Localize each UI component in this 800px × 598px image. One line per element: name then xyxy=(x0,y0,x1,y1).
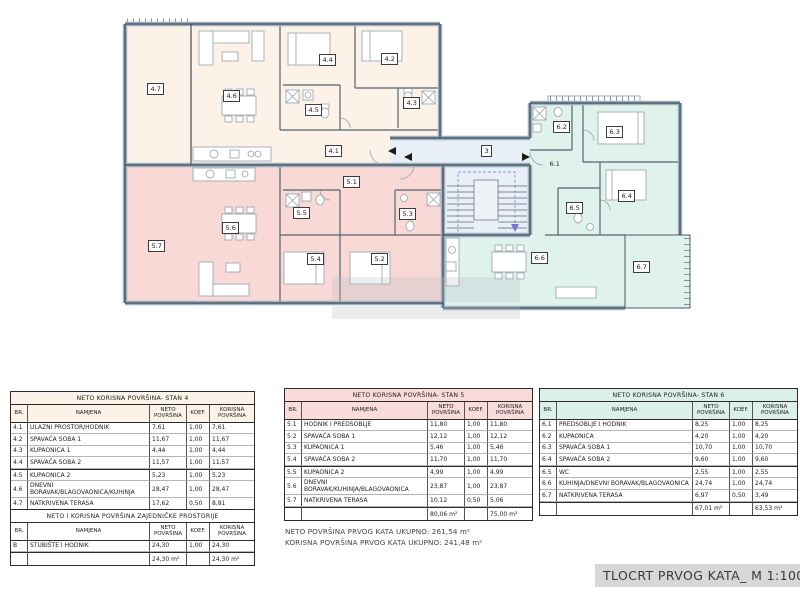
table-cell: 1,00 xyxy=(730,443,753,455)
table-total-row: 67,01 m²63,53 m² xyxy=(540,502,797,515)
room-label-6.5: 6.5 xyxy=(566,202,583,214)
room-label-5.3: 5.3 xyxy=(399,208,416,220)
table-cell: 5.2 xyxy=(285,431,302,443)
table-cell: 6.4 xyxy=(540,454,557,466)
table-row: 6.2KUPAONICA4,201,004,20 xyxy=(540,431,797,443)
table-row: 6.3SPAVAĆA SOBA 110,701,0010,70 xyxy=(540,443,797,455)
total-cell: 75,00 m² xyxy=(488,507,532,520)
table-cell: 2,55 xyxy=(753,466,797,479)
column-header: KORISNA POVRŠINA xyxy=(753,402,797,420)
table-cell: 12,12 xyxy=(488,431,532,443)
table-total-row: 24,30 m²24,30 m² xyxy=(11,552,254,565)
table-cell: KUPAONICA 1 xyxy=(302,443,428,455)
table-row: 4.5KUPAONICA 25,231,005,23 xyxy=(11,469,254,482)
drawing-title: TLOCRT PRVOG KATA_ M 1:100 xyxy=(603,568,800,583)
table-stan6: NETO KORISNA POVRŠINA- STAN 6BR.NAMJENAN… xyxy=(539,388,798,516)
total-neto-line: NETO POVRŠINA PRVOG KATA UKUPNO: 261,54 … xyxy=(285,526,482,537)
table-cell: 5.6 xyxy=(285,478,302,495)
table-cell: 11,67 xyxy=(150,434,187,446)
table-header-row: BR.NAMJENANETO POVRŠINAKOEF.KORISNA POVR… xyxy=(540,402,797,420)
room-label-4.1: 4.1 xyxy=(325,145,342,157)
table-cell: 5,46 xyxy=(428,443,465,455)
table-row: 5.1HODNIK I PREDSOBLJE11,801,0011,80 xyxy=(285,420,532,432)
table-cell: KUPAONICA 2 xyxy=(302,466,428,479)
table-cell: SPAVAĆA SOBA 2 xyxy=(557,454,693,466)
table-cell: 28,47 xyxy=(150,481,187,498)
title-block: TLOCRT PRVOG KATA_ M 1:100 xyxy=(595,564,800,587)
table-row: 6.5WC2,551,002,55 xyxy=(540,466,797,479)
table-cell: 11,70 xyxy=(428,454,465,466)
table-cell: 1,00 xyxy=(465,478,488,495)
table-cell: 1,00 xyxy=(187,469,210,482)
table-common: NETO I KORISNA POVRŠINA ZAJEDNIČKE PROST… xyxy=(10,509,255,566)
table-row: 5.3KUPAONICA 15,461,005,46 xyxy=(285,443,532,455)
total-cell xyxy=(730,502,753,515)
table-cell: SPAVAĆA SOBA 1 xyxy=(557,443,693,455)
table-cell: HODNIK I PREDSOBLJE xyxy=(302,420,428,432)
room-label-4.6: 4.6 xyxy=(223,90,240,102)
table-cell: 6,97 xyxy=(693,490,730,502)
table-row: 6.6KUHINJA/DNEVNI BORAVAK/BLAGOVAONICA24… xyxy=(540,478,797,490)
table-title: NETO I KORISNA POVRŠINA ZAJEDNIČKE PROST… xyxy=(11,510,254,523)
table-cell: 11,67 xyxy=(210,434,254,446)
table-cell: 3,49 xyxy=(753,490,797,502)
table-cell: 4.4 xyxy=(11,457,28,469)
total-cell xyxy=(11,552,28,565)
table-cell: 1,00 xyxy=(187,541,210,553)
column-header: KOEF. xyxy=(187,405,210,423)
table-cell: KUPAONICA 1 xyxy=(28,446,150,458)
table-cell: 1,00 xyxy=(730,466,753,479)
column-header: KORISNA POVRŠINA xyxy=(488,402,532,420)
floor-totals: NETO POVRŠINA PRVOG KATA UKUPNO: 261,54 … xyxy=(285,526,482,548)
table-cell: SPAVAĆA SOBA 2 xyxy=(302,454,428,466)
total-cell: 67,01 m² xyxy=(693,502,730,515)
column-header: KOEF. xyxy=(730,402,753,420)
table-header-row: BR.NAMJENANETO POVRŠINAKOEF.KORISNA POVR… xyxy=(11,523,254,541)
table-cell: 6.2 xyxy=(540,431,557,443)
table-cell: 2,55 xyxy=(693,466,730,479)
table-cell: 6.3 xyxy=(540,443,557,455)
column-header: NETO POVRŠINA xyxy=(150,405,187,423)
table-cell: 4,44 xyxy=(210,446,254,458)
table-cell: KUPAONICA 2 xyxy=(28,469,150,482)
table-cell: 23,87 xyxy=(488,478,532,495)
table-row: 6.1PREDSOBLJE I HODNIK8,251,008,25 xyxy=(540,420,797,432)
table-row: 4.4SPAVAĆA SOBA 211,571,0011,57 xyxy=(11,457,254,469)
table-cell: 1,00 xyxy=(730,431,753,443)
table-cell: 24,74 xyxy=(753,478,797,490)
table-cell: 5.1 xyxy=(285,420,302,432)
table-cell: 4.2 xyxy=(11,434,28,446)
column-header: NETO POVRŠINA xyxy=(693,402,730,420)
table-row: 5.6DNEVNI BORAVAK/KUHINJA/BLAGOVAONICA23… xyxy=(285,478,532,495)
table-cell: DNEVNI BORAVAK/BLAGOVAONICA/KUHINJA xyxy=(28,481,150,498)
table-cell: 1,00 xyxy=(187,434,210,446)
table-cell: 11,80 xyxy=(428,420,465,432)
table-cell: 1,00 xyxy=(465,431,488,443)
total-cell xyxy=(540,502,557,515)
total-cell: 63,53 m² xyxy=(753,502,797,515)
table-cell: SPAVAĆA SOBA 1 xyxy=(302,431,428,443)
room-label-4.5: 4.5 xyxy=(305,104,322,116)
table-row: 5.5KUPAONICA 24,991,004,99 xyxy=(285,466,532,479)
table-cell: 7,61 xyxy=(210,423,254,435)
column-header: KORISNA POVRŠINA xyxy=(210,405,254,423)
table-cell: 1,00 xyxy=(187,423,210,435)
column-header: NAMJENA xyxy=(302,402,428,420)
table-row: 4.2SPAVAĆA SOBA 111,671,0011,67 xyxy=(11,434,254,446)
column-header: NETO POVRŠINA xyxy=(428,402,465,420)
table-cell: 4.3 xyxy=(11,446,28,458)
table-cell: 1,00 xyxy=(465,454,488,466)
table-cell: KUHINJA/DNEVNI BORAVAK/BLAGOVAONICA xyxy=(557,478,693,490)
table-row: 6.7NATKRIVENA TERASA6,970,503,49 xyxy=(540,490,797,502)
room-label-5.4: 5.4 xyxy=(307,253,324,265)
total-cell xyxy=(187,552,210,565)
table-cell: 5.7 xyxy=(285,495,302,507)
table-cell: 1,00 xyxy=(730,478,753,490)
table-row: BSTUBIŠTE I HODNIK24,301,0024,30 xyxy=(11,541,254,553)
table-cell: 11,57 xyxy=(210,457,254,469)
table-cell: 9,60 xyxy=(753,454,797,466)
table-cell: 4,99 xyxy=(428,466,465,479)
room-label-3: 3 xyxy=(481,145,492,157)
table-cell: 1,00 xyxy=(187,481,210,498)
total-cell xyxy=(302,507,428,520)
table-cell: 11,57 xyxy=(150,457,187,469)
table-cell: 5,23 xyxy=(210,469,254,482)
table-cell: NATKRIVENA TERASA xyxy=(557,490,693,502)
table-cell: 1,00 xyxy=(187,457,210,469)
table-cell: DNEVNI BORAVAK/KUHINJA/BLAGOVAONICA xyxy=(302,478,428,495)
table-header-row: BR.NAMJENANETO POVRŠINAKOEF.KORISNA POVR… xyxy=(285,402,532,420)
table-cell: 10,70 xyxy=(693,443,730,455)
column-header: KOEF. xyxy=(187,523,210,541)
table-cell: 11,70 xyxy=(488,454,532,466)
room-label-5.2: 5.2 xyxy=(371,253,388,265)
table-cell: 10,12 xyxy=(428,495,465,507)
column-header: BR. xyxy=(540,402,557,420)
table-row: 4.3KUPAONICA 14,441,004,44 xyxy=(11,446,254,458)
table-cell: 4.1 xyxy=(11,423,28,435)
table-cell: 24,30 xyxy=(210,541,254,553)
table-cell: 5,46 xyxy=(488,443,532,455)
total-cell: 24,30 m² xyxy=(210,552,254,565)
watermark xyxy=(332,277,520,302)
total-cell xyxy=(465,507,488,520)
room-label-5.6: 5.6 xyxy=(222,222,239,234)
table-stan5: NETO KORISNA POVRŠINA- STAN 5BR.NAMJENAN… xyxy=(284,388,533,521)
table-cell: 4,99 xyxy=(488,466,532,479)
table-cell: 5.4 xyxy=(285,454,302,466)
table-cell: STUBIŠTE I HODNIK xyxy=(28,541,150,553)
table-cell: 6.6 xyxy=(540,478,557,490)
table-cell: 5,06 xyxy=(488,495,532,507)
table-title: NETO KORISNA POVRŠINA- STAN 4 xyxy=(11,392,254,405)
room-label-6.7: 6.7 xyxy=(633,261,650,273)
room-label-5.5: 5.5 xyxy=(293,207,310,219)
column-header: KOEF. xyxy=(465,402,488,420)
table-cell: 4.5 xyxy=(11,469,28,482)
room-label-6.4: 6.4 xyxy=(618,190,635,202)
table-cell: SPAVAĆA SOBA 1 xyxy=(28,434,150,446)
table-cell: 8,25 xyxy=(753,420,797,432)
room-label-4.7: 4.7 xyxy=(147,83,164,95)
watermark xyxy=(332,306,520,319)
table-cell: 8,25 xyxy=(693,420,730,432)
table-cell: 4.6 xyxy=(11,481,28,498)
total-cell xyxy=(28,552,150,565)
table-cell: 7,61 xyxy=(150,423,187,435)
table-row: 4.6DNEVNI BORAVAK/BLAGOVAONICA/KUHINJA28… xyxy=(11,481,254,498)
table-cell: 1,00 xyxy=(730,454,753,466)
table-cell: 4,44 xyxy=(150,446,187,458)
room-label-6.3: 6.3 xyxy=(606,126,623,138)
table-cell: PREDSOBLJE I HODNIK xyxy=(557,420,693,432)
column-header: KORISNA POVRŠINA xyxy=(210,523,254,541)
table-total-row: 80,06 m²75,00 m² xyxy=(285,507,532,520)
table-cell: ULAZNI PROSTOR/HODNIK xyxy=(28,423,150,435)
drawing-sheet: 34.14.24.34.44.54.64.75.15.25.35.45.55.6… xyxy=(0,0,800,598)
table-stan4: NETO KORISNA POVRŠINA- STAN 4BR.NAMJENAN… xyxy=(10,391,255,524)
table-cell: 0,50 xyxy=(465,495,488,507)
room-label-6.2: 6.2 xyxy=(553,121,570,133)
column-header: NETO POVRŠINA xyxy=(150,523,187,541)
table-cell: 11,80 xyxy=(488,420,532,432)
table-cell: 24,30 xyxy=(150,541,187,553)
total-cell: 80,06 m² xyxy=(428,507,465,520)
table-row: 4.1ULAZNI PROSTOR/HODNIK7,611,007,61 xyxy=(11,423,254,435)
room-label-5.1: 5.1 xyxy=(343,176,360,188)
total-cell xyxy=(285,507,302,520)
table-cell: NATKRIVENA TERASA xyxy=(302,495,428,507)
table-row: 6.4SPAVAĆA SOBA 29,601,009,60 xyxy=(540,454,797,466)
room-label-6.1: 6.1 xyxy=(547,159,562,169)
table-cell: 5,23 xyxy=(150,469,187,482)
table-title: NETO KORISNA POVRŠINA- STAN 5 xyxy=(285,389,532,402)
table-cell: 28,47 xyxy=(210,481,254,498)
column-header: NAMJENA xyxy=(28,405,150,423)
table-cell: 6.5 xyxy=(540,466,557,479)
table-cell: 5.5 xyxy=(285,466,302,479)
room-label-5.7: 5.7 xyxy=(148,240,165,252)
table-cell: 9,60 xyxy=(693,454,730,466)
table-cell: 23,87 xyxy=(428,478,465,495)
table-cell: 5.3 xyxy=(285,443,302,455)
table-cell: 24,74 xyxy=(693,478,730,490)
table-cell: 6.1 xyxy=(540,420,557,432)
table-cell: 1,00 xyxy=(465,443,488,455)
table-cell: 1,00 xyxy=(465,420,488,432)
table-cell: WC xyxy=(557,466,693,479)
table-cell: B xyxy=(11,541,28,553)
table-cell: 6.7 xyxy=(540,490,557,502)
column-header: BR. xyxy=(11,405,28,423)
table-cell: 0,50 xyxy=(730,490,753,502)
total-korisna-line: KORISNA POVRŠINA PRVOG KATA UKUPNO: 241,… xyxy=(285,537,482,548)
room-label-4.3: 4.3 xyxy=(403,97,420,109)
table-cell: KUPAONICA xyxy=(557,431,693,443)
room-label-4.4: 4.4 xyxy=(319,54,336,66)
table-header-row: BR.NAMJENANETO POVRŠINAKOEF.KORISNA POVR… xyxy=(11,405,254,423)
total-cell xyxy=(557,502,693,515)
total-cell: 24,30 m² xyxy=(150,552,187,565)
room-label-6.6: 6.6 xyxy=(531,252,548,264)
column-header: BR. xyxy=(285,402,302,420)
table-row: 5.7NATKRIVENA TERASA10,120,505,06 xyxy=(285,495,532,507)
table-cell: 4,20 xyxy=(753,431,797,443)
table-cell: 4,20 xyxy=(693,431,730,443)
column-header: NAMJENA xyxy=(28,523,150,541)
table-cell: 1,00 xyxy=(187,446,210,458)
table-title: NETO KORISNA POVRŠINA- STAN 6 xyxy=(540,389,797,402)
table-cell: SPAVAĆA SOBA 2 xyxy=(28,457,150,469)
room-label-4.2: 4.2 xyxy=(381,53,398,65)
column-header: BR. xyxy=(11,523,28,541)
table-row: 5.2SPAVAĆA SOBA 112,121,0012,12 xyxy=(285,431,532,443)
table-cell: 1,00 xyxy=(465,466,488,479)
table-cell: 12,12 xyxy=(428,431,465,443)
table-cell: 10,70 xyxy=(753,443,797,455)
table-row: 5.4SPAVAĆA SOBA 211,701,0011,70 xyxy=(285,454,532,466)
table-cell: 1,00 xyxy=(730,420,753,432)
column-header: NAMJENA xyxy=(557,402,693,420)
